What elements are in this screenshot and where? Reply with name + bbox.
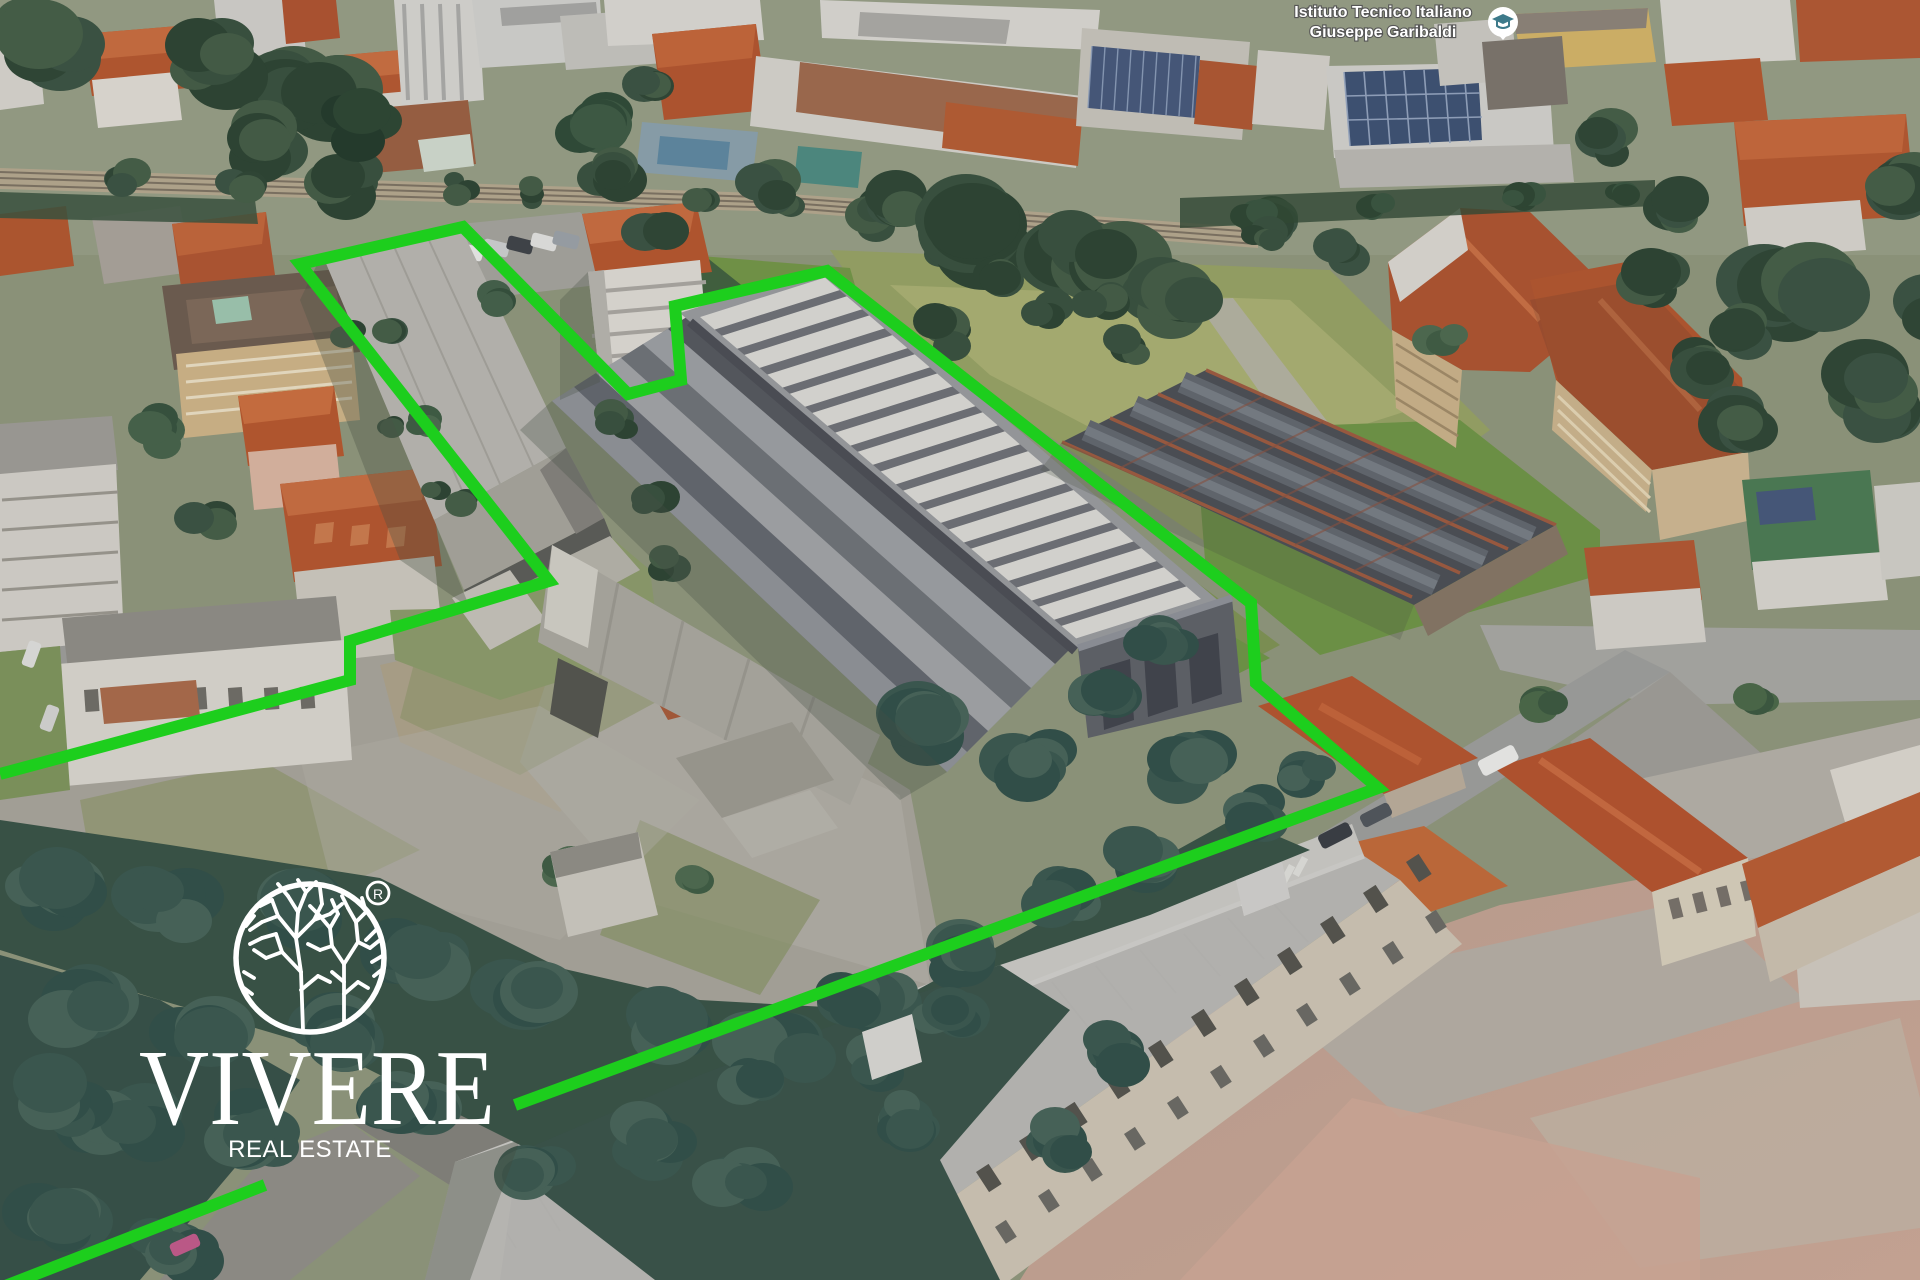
svg-text:Istituto Tecnico Italiano: Istituto Tecnico Italiano — [1294, 4, 1472, 21]
svg-text:R: R — [373, 886, 383, 902]
svg-text:VIVERE: VIVERE — [139, 1029, 495, 1148]
svg-text:Giuseppe Garibaldi: Giuseppe Garibaldi — [1310, 24, 1457, 41]
svg-text:REAL ESTATE: REAL ESTATE — [228, 1136, 392, 1163]
